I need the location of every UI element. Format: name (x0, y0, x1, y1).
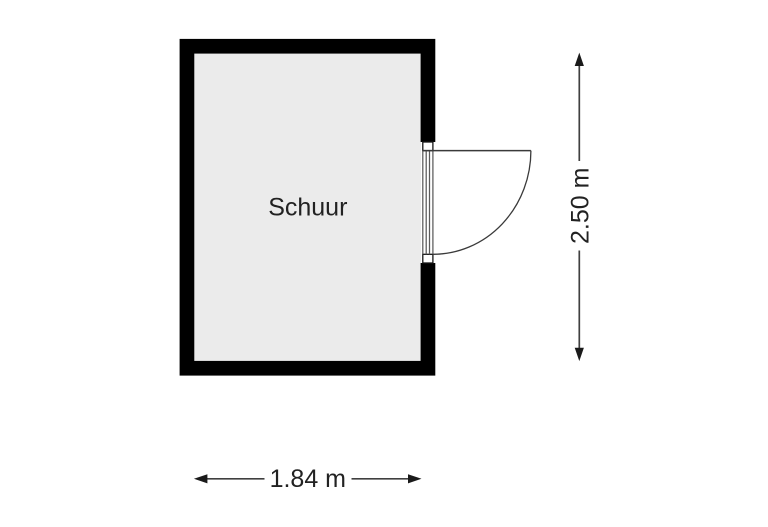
svg-text:1.84 m: 1.84 m (270, 465, 346, 493)
svg-text:2.50 m: 2.50 m (566, 168, 594, 244)
svg-text:Schuur: Schuur (268, 193, 347, 221)
